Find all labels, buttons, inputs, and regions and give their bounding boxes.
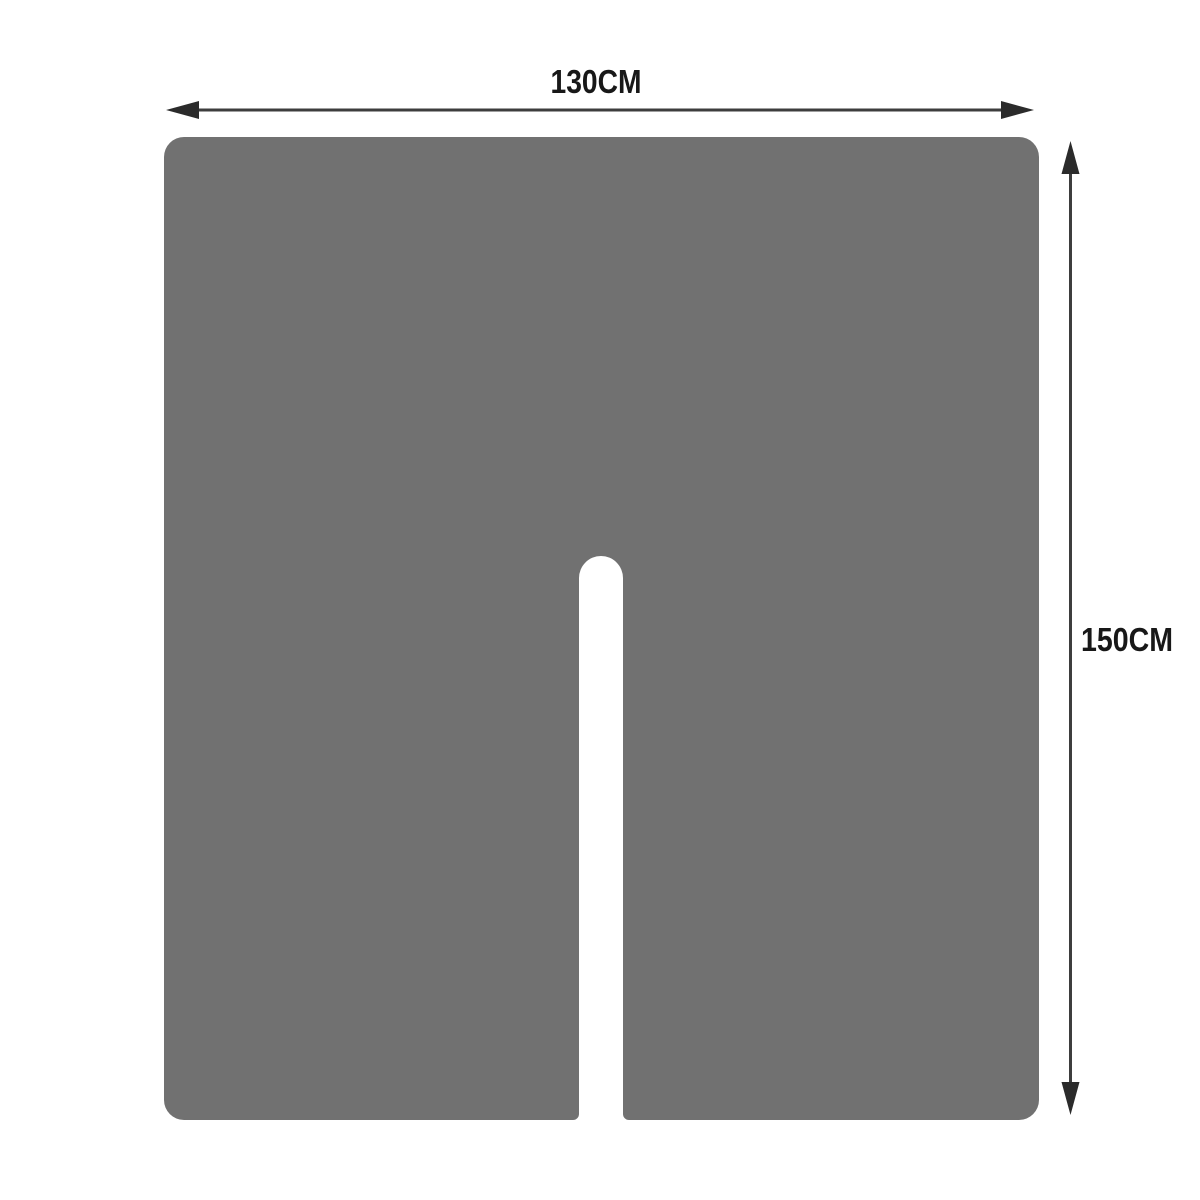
svg-text:130CM: 130CM (551, 63, 642, 100)
svg-text:150CM: 150CM (1081, 621, 1173, 658)
